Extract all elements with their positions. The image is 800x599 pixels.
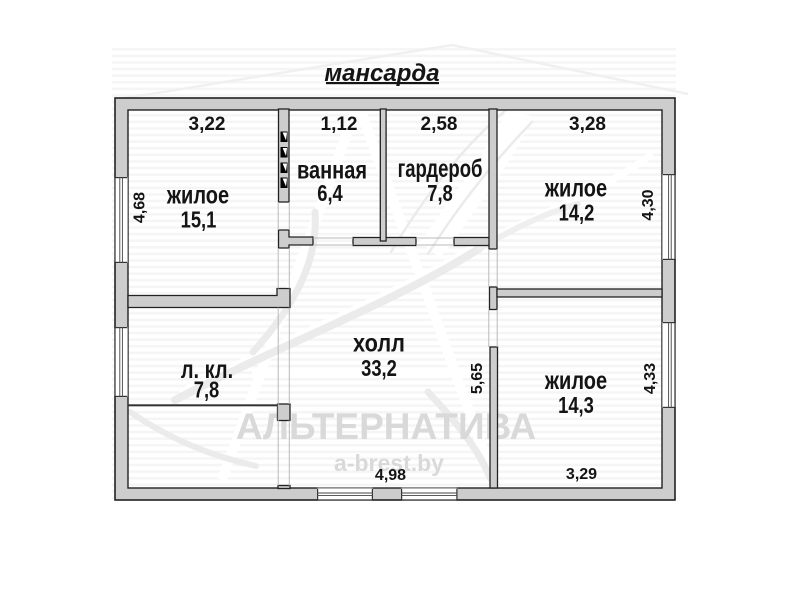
svg-text:гардероб: гардероб	[398, 154, 483, 182]
svg-text:4,33: 4,33	[642, 363, 659, 394]
svg-text:5,65: 5,65	[469, 363, 486, 394]
svg-text:14,2: 14,2	[559, 201, 595, 226]
svg-text:3,29: 3,29	[566, 466, 597, 483]
svg-text:15,1: 15,1	[181, 208, 217, 233]
svg-text:7,8: 7,8	[194, 378, 220, 403]
svg-text:4,30: 4,30	[640, 189, 657, 220]
svg-text:3,22: 3,22	[189, 114, 226, 135]
svg-text:жилое: жилое	[544, 367, 607, 395]
svg-text:ванная: ванная	[297, 156, 367, 184]
svg-text:жилое: жилое	[544, 174, 607, 202]
svg-text:жилое: жилое	[166, 181, 229, 209]
svg-text:14,3: 14,3	[558, 393, 594, 418]
svg-text:4,98: 4,98	[375, 467, 406, 484]
svg-text:холл: холл	[353, 329, 405, 357]
svg-text:7,8: 7,8	[427, 181, 453, 206]
svg-text:6,4: 6,4	[317, 181, 343, 206]
svg-text:4,68: 4,68	[132, 192, 149, 223]
svg-text:2,58: 2,58	[421, 114, 458, 135]
svg-text:3,28: 3,28	[569, 114, 606, 135]
svg-text:33,2: 33,2	[361, 356, 397, 381]
svg-text:1,12: 1,12	[321, 114, 358, 135]
